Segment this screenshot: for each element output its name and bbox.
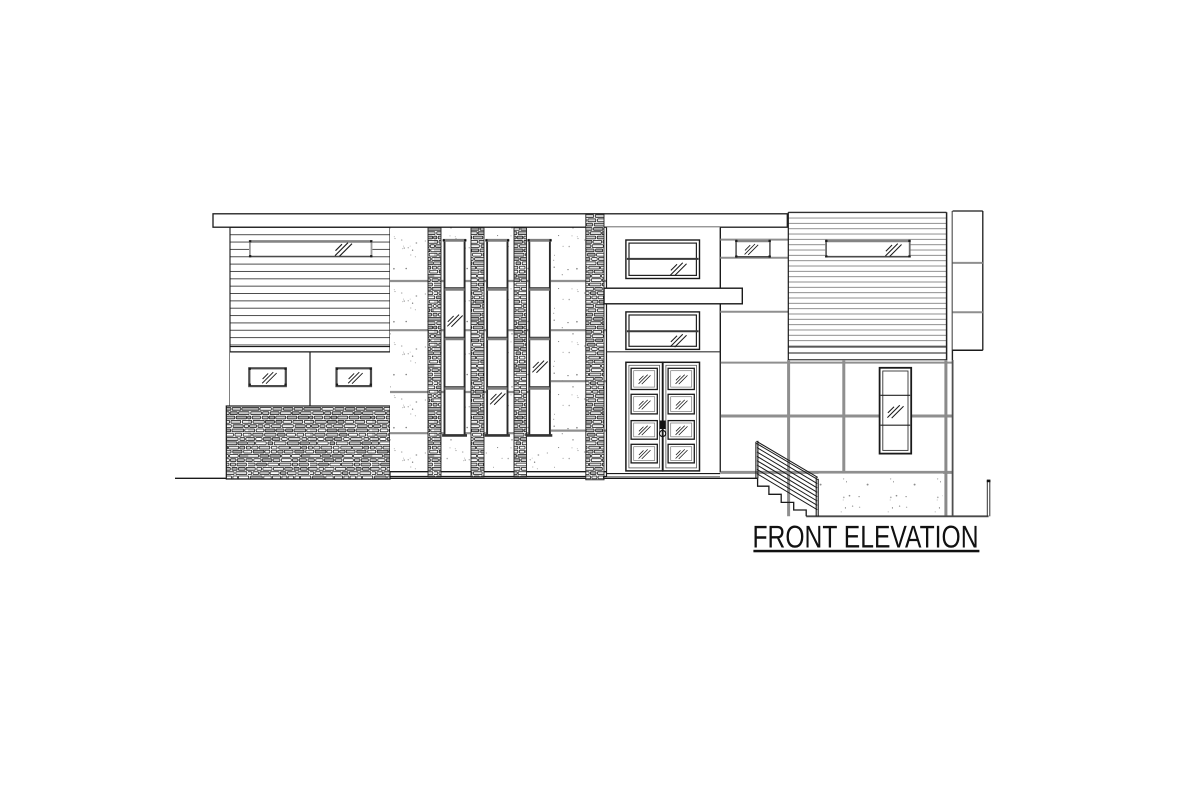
svg-text:FRONT ELEVATION: FRONT ELEVATION [753,518,979,554]
